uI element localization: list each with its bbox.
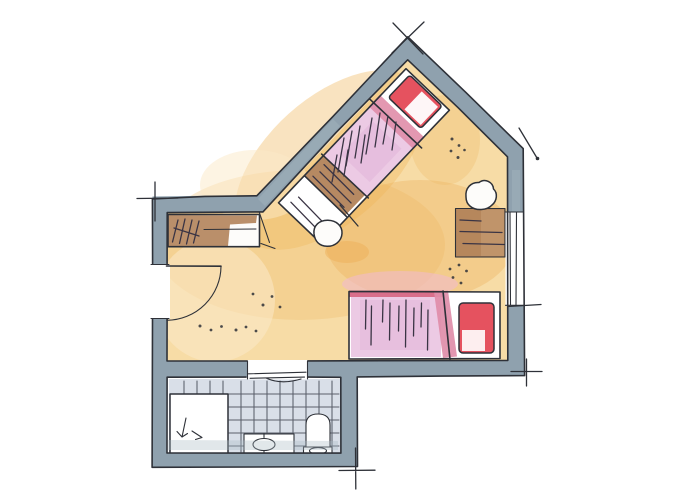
bed-lower — [349, 291, 500, 360]
tick-right-corner-dot — [536, 157, 540, 161]
entry-door-opening — [150, 265, 170, 320]
wardrobe-shelf-line — [204, 229, 256, 230]
floor-plan-sketch — [0, 0, 700, 500]
stool — [314, 220, 342, 246]
bathroom-door-opening — [248, 360, 309, 380]
floor-pale-blob-1 — [155, 238, 275, 362]
plan-canvas — [0, 0, 700, 500]
desk — [456, 209, 506, 258]
bed-lower-pillow-highlight — [462, 330, 485, 351]
desk-chair — [466, 181, 496, 210]
wardrobe — [168, 215, 260, 247]
